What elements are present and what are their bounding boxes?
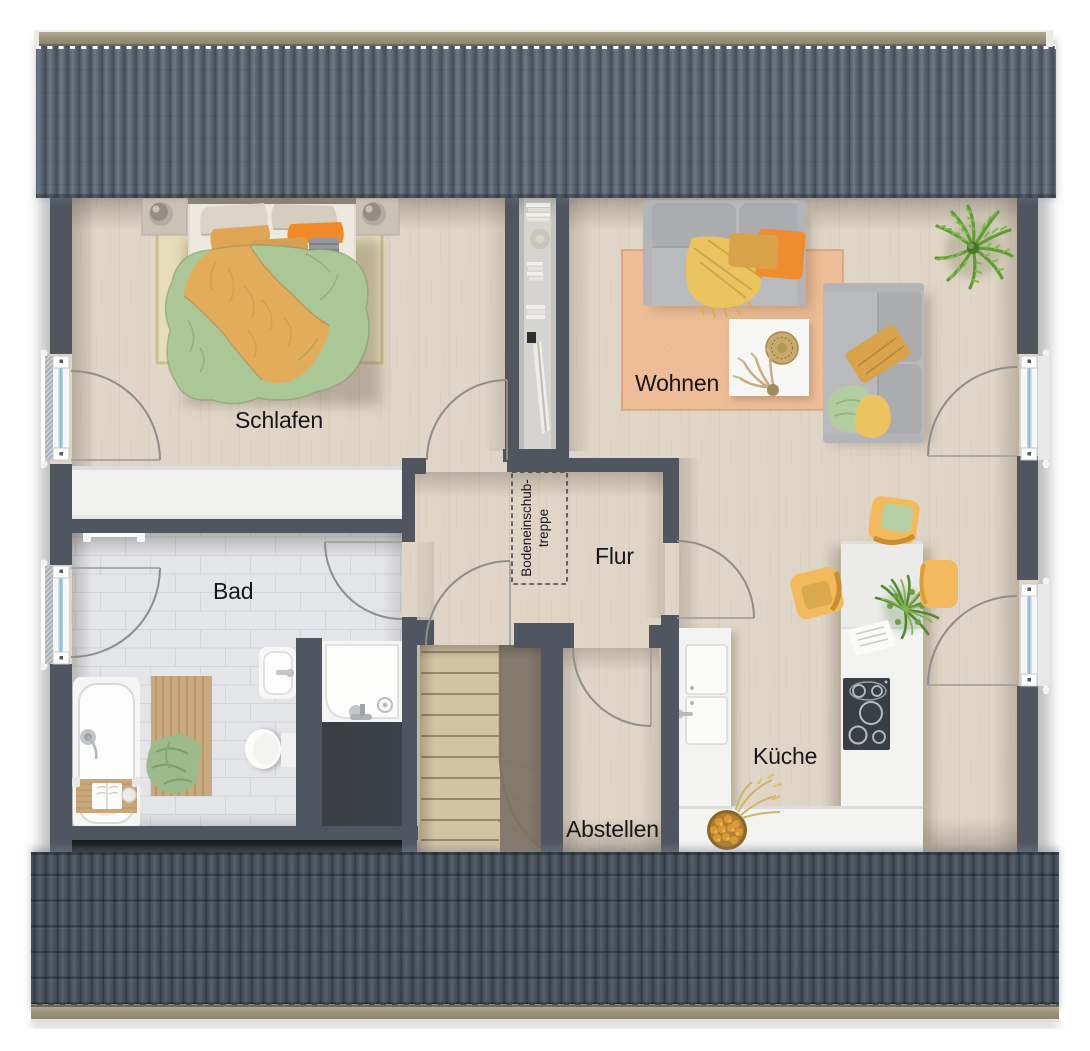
svg-text:treppe: treppe (536, 509, 551, 547)
svg-text:Bad: Bad (213, 578, 253, 604)
svg-text:Flur: Flur (595, 543, 634, 569)
svg-text:Schlafen: Schlafen (235, 407, 323, 433)
svg-text:Abstellen: Abstellen (566, 816, 659, 842)
svg-text:Wohnen: Wohnen (635, 370, 719, 396)
svg-text:Bodeneinschub-: Bodeneinschub- (519, 479, 534, 577)
svg-text:Küche: Küche (753, 743, 817, 769)
